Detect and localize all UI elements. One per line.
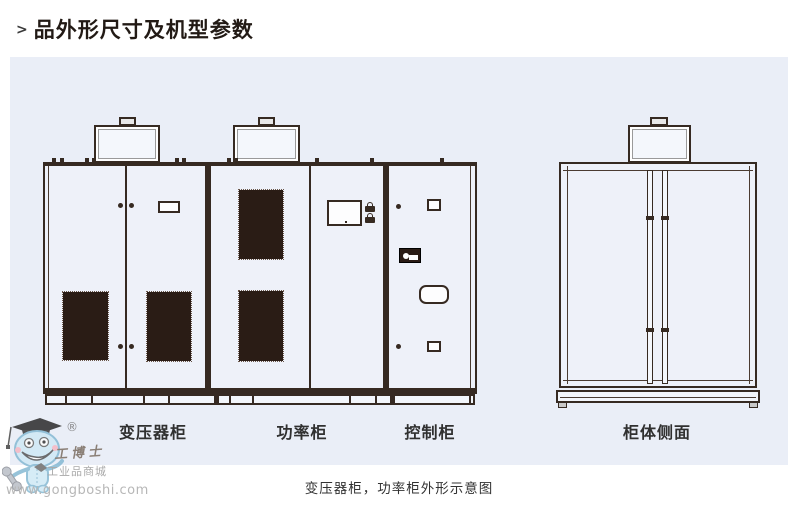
- hmi-screen: [327, 200, 362, 226]
- fan-housing: [233, 125, 300, 163]
- fan-housing-inner: [98, 129, 156, 159]
- rail-hinge: [646, 216, 654, 220]
- padlock-icon: [365, 213, 375, 223]
- frame-line: [470, 166, 471, 388]
- nameplate: [158, 201, 180, 213]
- side-rail: [647, 170, 653, 384]
- side-base: [556, 390, 760, 403]
- chevron-right-icon: >: [16, 22, 28, 38]
- vent-grille: [239, 291, 283, 361]
- fan-housing-inner: [237, 129, 296, 159]
- watermark-logo: ® 工博士 工业品商城 www.gongboshi.com: [2, 415, 152, 510]
- device-display: [409, 253, 418, 260]
- fan-housing: [628, 125, 691, 163]
- control-device: [399, 248, 421, 263]
- label-control-cabinet: 控制柜: [370, 419, 490, 439]
- rail-hinge: [661, 328, 669, 332]
- door-seam-transformer: [125, 166, 127, 390]
- door-lock-dot: [396, 344, 401, 349]
- plinth-base: [45, 394, 475, 405]
- door-lock-dot: [118, 344, 123, 349]
- label-power-cabinet: 功率柜: [242, 419, 362, 439]
- base-divider: [252, 396, 254, 403]
- page-title: 品外形尺寸及机型参数: [34, 14, 254, 44]
- diagram-panel: 变压器柜 功率柜 控制柜 柜体侧面: [10, 57, 788, 465]
- base-divider: [65, 396, 67, 403]
- vent-grille: [239, 190, 283, 259]
- fan-housing: [94, 125, 160, 163]
- indicator-window: [427, 199, 441, 211]
- screen-dot: [345, 221, 347, 223]
- rail-hinge: [646, 328, 654, 332]
- base-divider: [168, 396, 170, 403]
- frame-line: [567, 166, 568, 384]
- registered-mark-icon: ®: [66, 420, 78, 434]
- door-lock-dot: [118, 203, 123, 208]
- door-lock-dot: [129, 344, 134, 349]
- side-view-frame: [559, 162, 757, 388]
- frame-line: [48, 166, 49, 388]
- label-side-view: 柜体侧面: [597, 419, 717, 439]
- page: > 品外形尺寸及机型参数: [0, 0, 796, 510]
- frame-line: [560, 397, 756, 398]
- cabinet-divider: [205, 164, 211, 390]
- door-seam-power: [309, 166, 311, 390]
- base-divider: [143, 396, 145, 403]
- louver-opening: [419, 285, 449, 304]
- base-divider: [91, 396, 93, 403]
- base-divider: [349, 396, 351, 403]
- frame-line: [749, 166, 750, 384]
- base-divider: [390, 396, 395, 403]
- frame-line: [563, 170, 753, 171]
- vent-grille: [63, 292, 108, 360]
- padlock-icon: [365, 202, 375, 212]
- base-divider: [229, 396, 231, 403]
- watermark-url: www.gongboshi.com: [6, 483, 149, 498]
- rail-hinge: [661, 216, 669, 220]
- door-lock-dot: [396, 204, 401, 209]
- indicator-window: [427, 341, 441, 352]
- cabinet-divider: [383, 164, 389, 390]
- base-divider: [469, 396, 471, 403]
- section-header: > 品外形尺寸及机型参数: [16, 14, 254, 44]
- vent-grille: [147, 292, 191, 361]
- frame-line: [563, 380, 753, 381]
- fan-housing-inner: [632, 129, 687, 159]
- side-rail: [662, 170, 668, 384]
- door-lock-dot: [129, 203, 134, 208]
- base-divider: [375, 396, 377, 403]
- watermark-brand: 工博士: [53, 440, 105, 463]
- base-divider: [214, 396, 219, 403]
- watermark-tagline: 工业品商城: [47, 463, 107, 479]
